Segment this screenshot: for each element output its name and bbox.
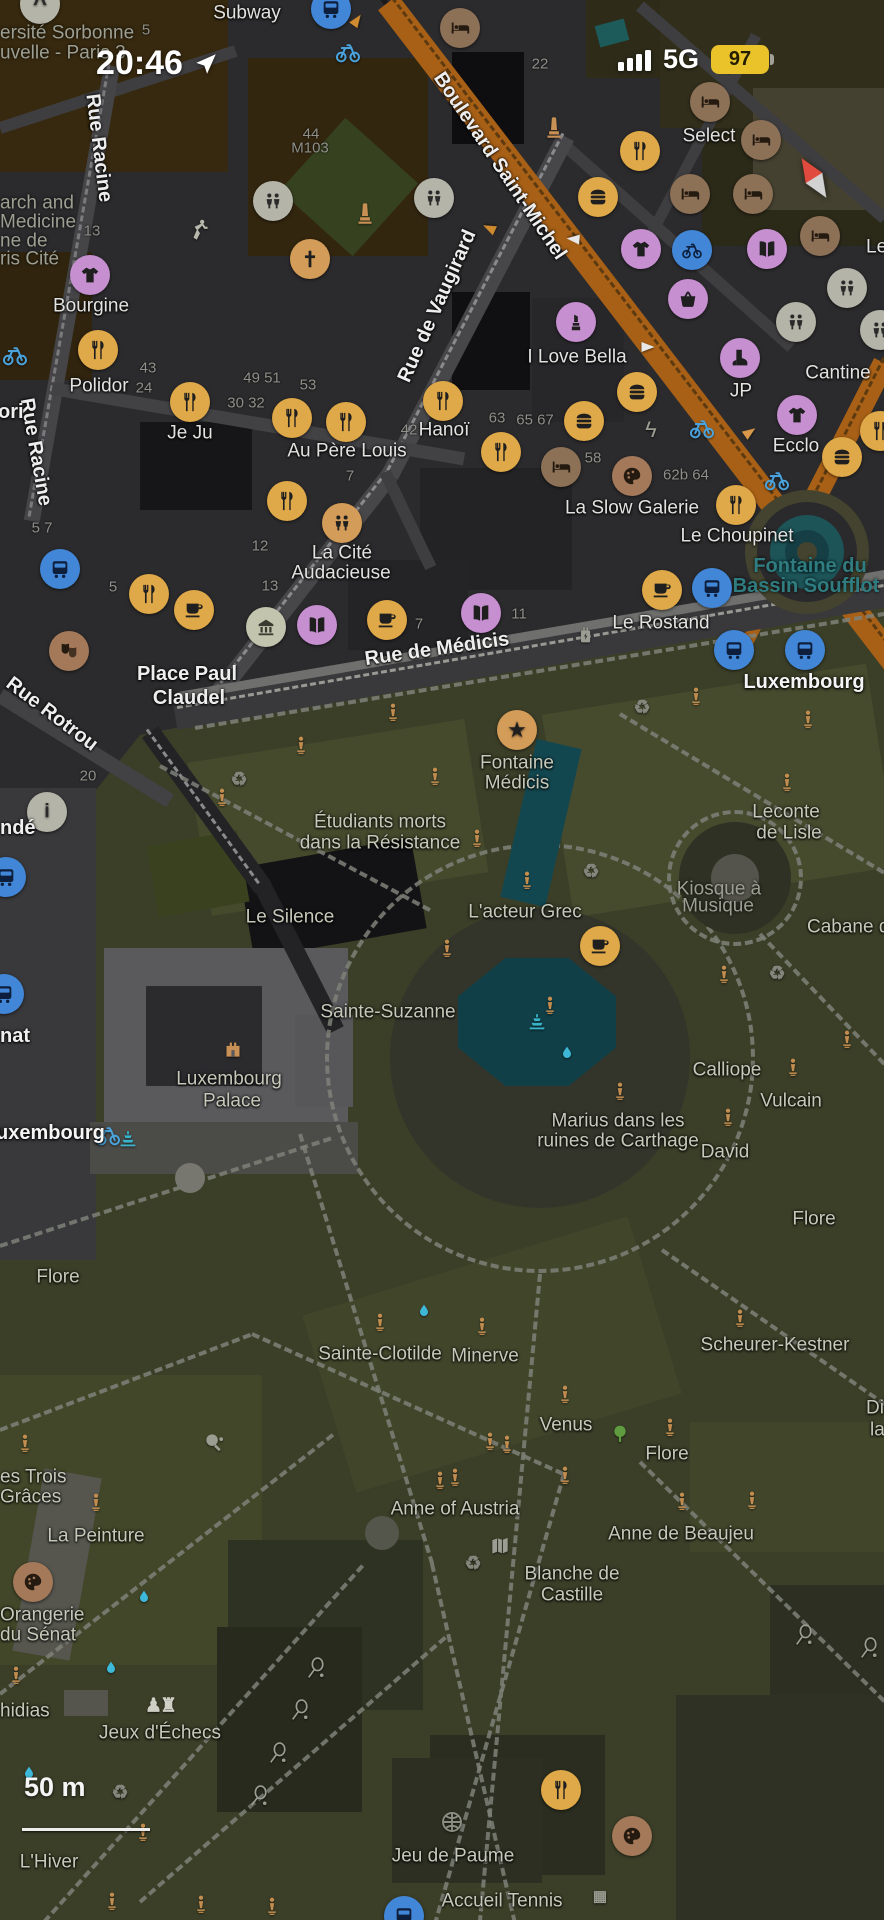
shirt-icon[interactable] [777, 395, 817, 435]
statue-icon [742, 1490, 762, 1510]
house-number: 30 32 [227, 396, 265, 411]
statue-icon [370, 1312, 390, 1332]
statue-icon [437, 938, 457, 958]
compass-button[interactable] [782, 146, 846, 210]
restaurant-icon[interactable] [620, 131, 660, 171]
tennis-icon [857, 1637, 882, 1662]
restaurant-icon[interactable] [541, 1770, 581, 1810]
park-poi-label: Leconte [752, 803, 820, 822]
poi-label: Select [683, 127, 736, 146]
basket-icon[interactable] [668, 279, 708, 319]
park-poi-label: Palace [203, 1092, 261, 1111]
burger-icon[interactable] [822, 437, 862, 477]
bus-icon[interactable] [785, 630, 825, 670]
statue-icon [555, 1384, 575, 1404]
park-poi-label: Vulcain [760, 1092, 822, 1111]
house-number: 13 [262, 579, 279, 594]
water-label: Bassin Soufflot [733, 576, 880, 596]
area-label: arch and [0, 194, 74, 213]
theater-icon[interactable] [49, 631, 89, 671]
park-poi-label: du Sénat [0, 1626, 76, 1645]
recycle-icon: ♻ [230, 769, 247, 792]
tree-icon [610, 1424, 631, 1445]
poi-label: Au Père Louis [287, 442, 406, 461]
statue-icon [777, 772, 797, 792]
tennis-icon [304, 1657, 329, 1682]
poi-label: Le [866, 238, 884, 257]
street-label: Claudel [153, 688, 225, 708]
statue-icon [133, 1822, 153, 1842]
restaurant-icon[interactable] [716, 485, 756, 525]
tennis-icon [792, 1624, 817, 1649]
bus-icon[interactable] [311, 0, 351, 29]
book-icon[interactable] [297, 605, 337, 645]
monument-icon [541, 115, 567, 141]
statue-icon [15, 1433, 35, 1453]
poi-label: Subway [213, 4, 281, 23]
park-poi-label: Cabane du [807, 918, 884, 937]
bed-icon[interactable] [440, 8, 480, 48]
cafe-icon[interactable] [642, 570, 682, 610]
house-number: 62b 64 [663, 468, 709, 483]
park-poi-label: Flore [792, 1210, 835, 1229]
star-icon[interactable]: ★ [497, 710, 537, 750]
statue-icon [425, 766, 445, 786]
restaurant-icon[interactable] [267, 481, 307, 521]
recycle-icon: ♻ [582, 861, 599, 884]
street-label: ori [0, 402, 24, 422]
park-poi-label: Jeu de Paume [392, 1847, 515, 1866]
statue-icon [798, 709, 818, 729]
park-poi-label: Anne of Austria [391, 1500, 520, 1519]
park-poi-label: Étudiants morts [314, 813, 446, 832]
house-number: 42 [401, 423, 418, 438]
poi-label: La Cité [312, 544, 372, 563]
recycle-icon: ♻ [633, 697, 650, 720]
street-label: Place Paul [137, 664, 237, 684]
recycle-icon: ♻ [768, 963, 785, 986]
restaurant-icon[interactable] [129, 574, 169, 614]
book-icon[interactable] [461, 593, 501, 633]
house-number: 43 [140, 361, 157, 376]
park-poi-label: Médicis [485, 774, 549, 793]
park-poi-label: Marius dans les [551, 1112, 684, 1131]
tennis-icon [266, 1742, 291, 1767]
bus-icon[interactable] [714, 630, 754, 670]
drop-icon [416, 1303, 432, 1319]
house-number: 7 [415, 617, 423, 632]
park-poi-label: hidias [0, 1702, 50, 1721]
park-poi-label: Orangerie [0, 1606, 85, 1625]
restaurant-icon[interactable] [481, 432, 521, 472]
statue-icon [783, 1057, 803, 1077]
bank-icon[interactable] [246, 607, 286, 647]
bed-icon[interactable] [800, 216, 840, 256]
park-poi-label: dans la Résistance [300, 834, 461, 853]
park-poi-label: Castille [541, 1586, 603, 1605]
restaurant-icon[interactable] [272, 398, 312, 438]
burger-icon[interactable] [617, 372, 657, 412]
statue-icon [102, 1891, 122, 1911]
park-poi-label: Calliope [693, 1061, 762, 1080]
arrow-icon [742, 424, 758, 440]
area-label: ersité Sorbonne [0, 24, 134, 43]
park-poi-label: Le Silence [246, 908, 335, 927]
house-number: 53 [300, 378, 317, 393]
park-poi-label: Di [866, 1399, 884, 1418]
park-poi-label: Flore [645, 1445, 688, 1464]
house-number: 11 [511, 607, 527, 622]
park-poi-label: Venus [540, 1416, 593, 1435]
park-poi-label: Blanche de [524, 1565, 619, 1584]
building [676, 1695, 884, 1920]
restaurant-icon[interactable] [170, 382, 210, 422]
restaurant-icon[interactable] [78, 330, 118, 370]
bolt-icon: ϟ [645, 417, 657, 443]
map-icon [489, 1535, 512, 1558]
house-number: 24 [136, 381, 153, 396]
statue-icon [430, 1470, 450, 1490]
station-label: Luxembourg [743, 672, 864, 692]
recycle-icon: ♻ [464, 1553, 481, 1576]
drop-icon [559, 1045, 575, 1061]
park-poi-label: Fontaine [480, 754, 554, 773]
bed-icon[interactable] [733, 174, 773, 214]
burger-icon[interactable] [564, 401, 604, 441]
poi-label: Hanoï [419, 421, 470, 440]
compass-needle-icon [775, 139, 852, 216]
fountain-icon [526, 1011, 548, 1033]
arrow-icon [642, 342, 655, 352]
park-poi-label: de Lisle [756, 824, 822, 843]
poi-label: Je Ju [167, 424, 212, 443]
bus-icon[interactable] [40, 549, 80, 589]
drop-icon [103, 1660, 119, 1676]
arrow-icon [349, 12, 365, 28]
park-poi-label: L'Hiver [20, 1853, 79, 1872]
statue-icon [730, 1308, 750, 1328]
poi-label: I Love Bella [527, 348, 626, 367]
palette-icon[interactable] [612, 456, 652, 496]
statue-icon [212, 787, 232, 807]
house-number: 7 [346, 469, 354, 484]
community-icon[interactable] [322, 503, 362, 543]
statue-icon [472, 1316, 492, 1336]
cafe-icon[interactable] [367, 600, 407, 640]
community-icon[interactable] [827, 268, 867, 308]
house-number: 5 7 [32, 521, 53, 536]
statue-icon [714, 964, 734, 984]
park-poi-label: Grâces [0, 1488, 61, 1507]
poi-label: Polidor [69, 377, 128, 396]
house-number: 63 [489, 411, 506, 426]
building [64, 1690, 108, 1716]
park-poi-label: Sainte-Clotilde [318, 1345, 442, 1364]
map-scale: 50 m [24, 1772, 86, 1803]
lipstick-icon[interactable] [556, 302, 596, 342]
bench-icon: ▦ [593, 1887, 607, 1905]
statue-icon [686, 686, 706, 706]
park-poi-label: Jeux d'Échecs [99, 1724, 221, 1743]
cafe-icon[interactable] [174, 590, 214, 630]
community-icon[interactable] [414, 178, 454, 218]
park-poi-label: Accueil Tennis [441, 1892, 562, 1911]
recycle-icon: ♻ [111, 1782, 128, 1805]
restaurant-icon[interactable] [326, 402, 366, 442]
house-number: 5 [109, 580, 117, 595]
street-label: nat [0, 1026, 30, 1046]
water-label: Fontaine du [753, 556, 866, 576]
statue-icon [191, 1894, 211, 1914]
basketball-icon [439, 1809, 466, 1836]
cross-icon[interactable] [290, 239, 330, 279]
shirt-icon[interactable] [70, 255, 110, 295]
house-number: 58 [585, 451, 602, 466]
park-poi-label: es Trois [0, 1468, 67, 1487]
palette-icon[interactable] [612, 1816, 652, 1856]
pingpong-icon [203, 1432, 226, 1455]
bike-icon [335, 39, 362, 66]
poi-label: Le Choupinet [680, 527, 793, 546]
boot-icon[interactable] [720, 338, 760, 378]
scale-line [22, 1828, 150, 1831]
shirt-icon[interactable] [621, 229, 661, 269]
poi-label: JP [730, 382, 752, 401]
tennis-icon [288, 1699, 313, 1724]
house-number: 20 [80, 769, 97, 784]
house-number: 13 [84, 224, 101, 239]
house-number: 49 51 [243, 371, 281, 386]
area-label: uvelle - Paris 3 [0, 44, 126, 63]
bike-icon [689, 415, 716, 442]
area-label: Musique [682, 897, 754, 916]
bikerental-icon[interactable] [672, 230, 712, 270]
statue-icon [660, 1417, 680, 1437]
park-poi-label: Scheurer-Kestner [701, 1336, 850, 1355]
arrow-icon [566, 233, 580, 244]
statue-icon [672, 1491, 692, 1511]
house-number: 5 [142, 23, 150, 38]
street-label: ndé [0, 818, 36, 838]
statue-icon [262, 1896, 282, 1916]
house-number: 22 [532, 57, 549, 72]
community-icon[interactable] [776, 302, 816, 342]
poi-label: Le Rostand [612, 614, 709, 633]
park-poi-label: L'acteur Grec [468, 903, 581, 922]
station-label: uxembourg [0, 1123, 105, 1143]
community-icon[interactable] [860, 310, 884, 350]
runner-icon [187, 217, 213, 243]
fountain-icon [117, 1128, 139, 1150]
burger-icon[interactable] [578, 177, 618, 217]
bus-icon[interactable] [692, 568, 732, 608]
arrow-icon [481, 221, 497, 236]
park-poi-label: Minerve [451, 1347, 519, 1366]
palette-icon[interactable] [13, 1562, 53, 1602]
statue-icon [467, 828, 487, 848]
castle-icon [220, 1035, 246, 1061]
cafe-icon[interactable] [580, 926, 620, 966]
statue-icon [610, 1081, 630, 1101]
poi-label: Ecclo [773, 437, 819, 456]
poi-label: Audacieuse [291, 564, 390, 583]
bed-icon[interactable] [541, 447, 581, 487]
statue-icon [837, 1029, 857, 1049]
area-label: Medicine [0, 213, 76, 232]
park-poi-label: Flore [36, 1268, 79, 1287]
house-number: M103 [291, 141, 329, 156]
park-poi-label: Luxembourg [176, 1070, 282, 1089]
poi-label: Cantine [805, 364, 871, 383]
bed-icon[interactable] [670, 174, 710, 214]
book-icon[interactable] [747, 229, 787, 269]
park-poi-label: ruines de Carthage [537, 1132, 699, 1151]
poi-label: Bourgine [53, 297, 129, 316]
map-circle-feature [365, 1516, 399, 1550]
poi-label: La Slow Galerie [565, 499, 699, 518]
statue-icon [86, 1492, 106, 1512]
house-number: 12 [252, 539, 269, 554]
map-canvas[interactable]: ϟ♻♻♻♻♻♻♟♜▦★i^ SubwayBoulevard Saint-Mich… [0, 0, 884, 1920]
monument-icon [352, 201, 378, 227]
chess-icon: ♟♜ [145, 1695, 175, 1718]
area-label: ris Cité [0, 250, 59, 269]
drop-icon [136, 1589, 152, 1605]
map-circle-feature [175, 1163, 205, 1193]
statue-icon [718, 1107, 738, 1127]
ev-icon [575, 624, 597, 646]
park-poi-label: Sainte-Suzanne [320, 1003, 455, 1022]
restaurant-icon[interactable] [423, 381, 463, 421]
bed-icon[interactable] [690, 82, 730, 122]
bike-icon [2, 342, 29, 369]
statue-icon [291, 735, 311, 755]
park-poi-label: David [701, 1143, 750, 1162]
park-poi-label: La Peinture [47, 1527, 144, 1546]
bike-icon [764, 467, 791, 494]
statue-icon [555, 1465, 575, 1485]
scale-label: 50 m [24, 1772, 86, 1802]
park-poi-label: la [870, 1421, 884, 1440]
statue-icon [517, 870, 537, 890]
community-icon[interactable] [253, 181, 293, 221]
statue-icon [480, 1431, 500, 1451]
park-poi-label: Anne de Beaujeu [608, 1525, 754, 1544]
statue-icon [497, 1434, 517, 1454]
bed-icon[interactable] [741, 120, 781, 160]
house-number: 65 67 [516, 413, 554, 428]
statue-icon [383, 702, 403, 722]
tennis-icon [247, 1785, 272, 1810]
statue-icon [6, 1665, 26, 1685]
